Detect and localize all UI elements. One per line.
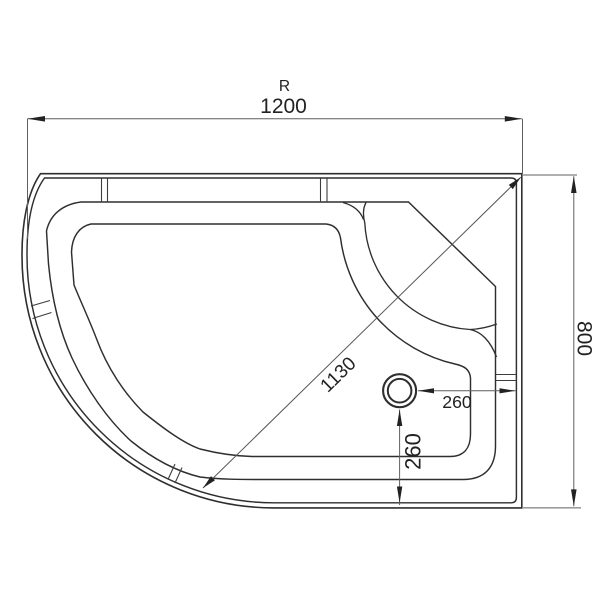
svg-text:R: R [279,78,290,95]
svg-text:260: 260 [442,392,472,412]
svg-text:260: 260 [401,433,426,470]
svg-text:1200: 1200 [260,95,307,118]
svg-text:800: 800 [573,321,596,356]
